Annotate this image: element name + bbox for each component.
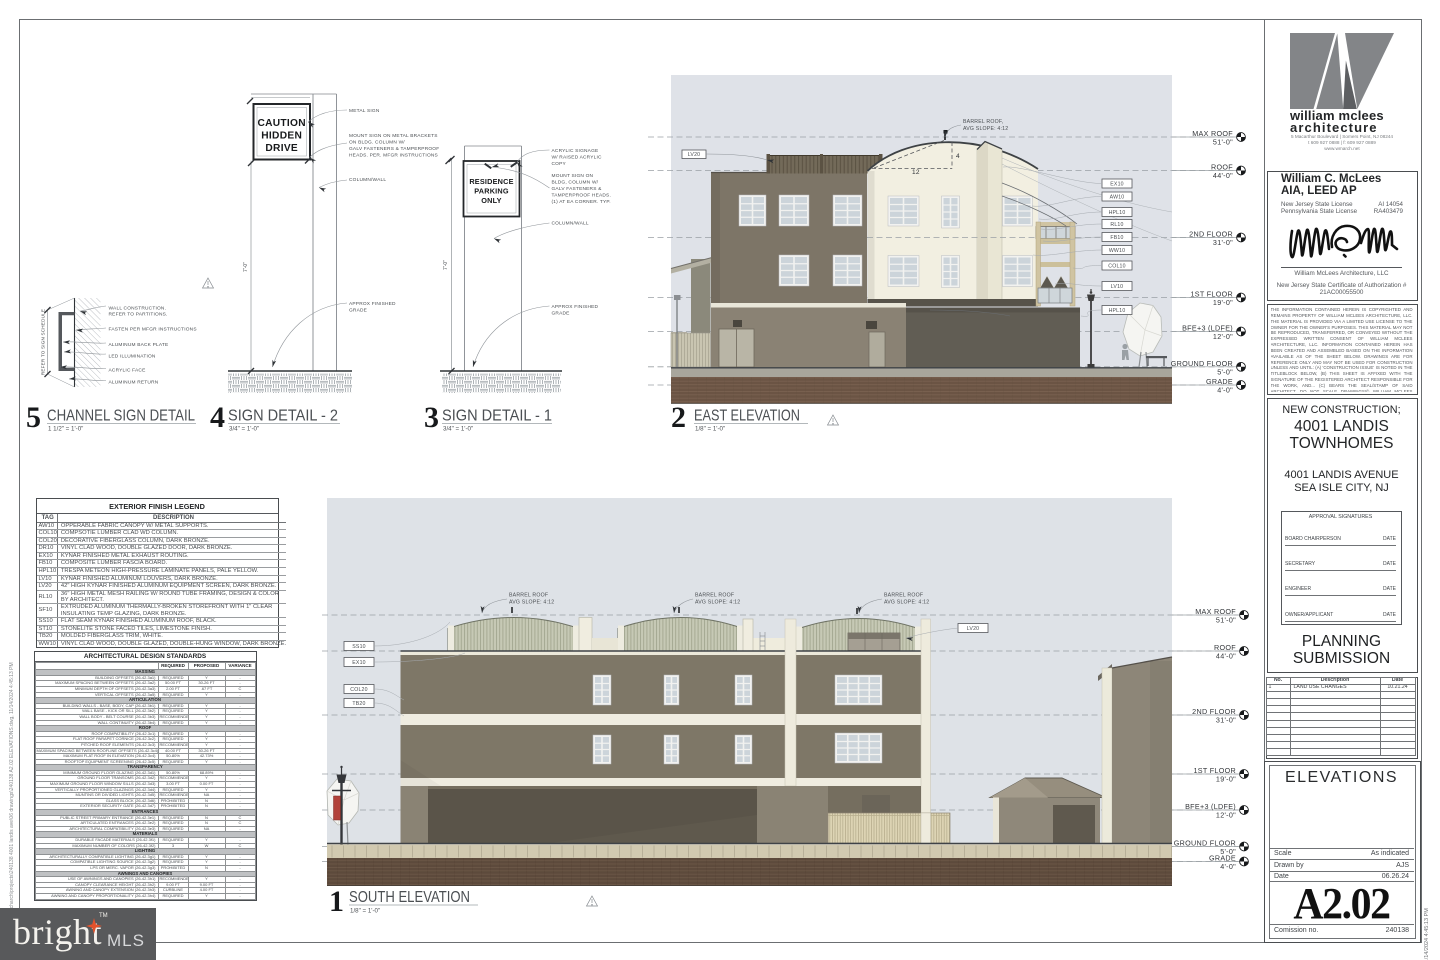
svg-text:GRADE: GRADE [349, 308, 367, 314]
svg-text:HPL10: HPL10 [1109, 210, 1126, 216]
svg-text:BARREL ROOF,: BARREL ROOF, [963, 119, 1003, 125]
svg-text:44'-0": 44'-0" [1216, 652, 1236, 661]
svg-text:TB20: TB20 [352, 701, 365, 707]
svg-text:5'-0": 5'-0" [1217, 367, 1233, 376]
svg-text:1/8" = 1'-0": 1/8" = 1'-0" [350, 908, 380, 915]
svg-text:7'-0": 7'-0" [443, 260, 449, 270]
svg-text:31'-0": 31'-0" [1216, 716, 1236, 725]
svg-text:7'-0": 7'-0" [243, 262, 249, 272]
svg-text:FASTEN PER MFGR INSTRUCTIONS: FASTEN PER MFGR INSTRUCTIONS [109, 327, 197, 333]
svg-text:44'-0": 44'-0" [1213, 171, 1233, 180]
svg-text:COPY: COPY [552, 161, 567, 167]
svg-text:1: 1 [329, 885, 344, 918]
svg-text:LV10: LV10 [1111, 284, 1124, 290]
svg-text:LV20: LV20 [967, 626, 980, 632]
svg-text:AW10: AW10 [1110, 194, 1125, 200]
svg-text:1/8" = 1'-0": 1/8" = 1'-0" [695, 426, 725, 433]
svg-text:COLUMN/WALL: COLUMN/WALL [349, 177, 386, 183]
svg-text:WW10: WW10 [1109, 248, 1125, 254]
svg-text:CAUTION: CAUTION [257, 118, 306, 129]
svg-text:COL10: COL10 [1108, 263, 1125, 269]
svg-text:5: 5 [26, 401, 41, 434]
svg-text:AVG SLOPE: 4:12: AVG SLOPE: 4:12 [509, 600, 554, 606]
svg-text:ON BLDG. COLUMN W/: ON BLDG. COLUMN W/ [349, 140, 405, 146]
svg-text:12'-0": 12'-0" [1216, 811, 1236, 820]
svg-text:GALV FASTENERS & TAMPERPROOF: GALV FASTENERS & TAMPERPROOF [349, 146, 439, 152]
svg-text:FB10: FB10 [1110, 235, 1123, 241]
svg-text:ALUMINUM RETURN: ALUMINUM RETURN [109, 380, 159, 386]
svg-text:BLDG, COLUMN W/: BLDG, COLUMN W/ [552, 180, 599, 186]
svg-text:HIDDEN: HIDDEN [261, 131, 302, 142]
svg-text:APPROX FINISHED: APPROX FINISHED [349, 301, 396, 307]
svg-text:SS10: SS10 [352, 644, 366, 650]
svg-text:ACRYLIC SIGNAGE: ACRYLIC SIGNAGE [552, 148, 599, 154]
svg-text:REFER TO PARTITIONS.: REFER TO PARTITIONS. [109, 312, 168, 318]
svg-text:METAL SIGN: METAL SIGN [349, 108, 380, 114]
svg-text:51'-0": 51'-0" [1213, 138, 1233, 147]
svg-text:EX10: EX10 [352, 660, 366, 666]
svg-text:HPL10: HPL10 [1109, 308, 1126, 314]
svg-text:COLUMN/WALL: COLUMN/WALL [552, 221, 589, 227]
svg-text:SIGN DETAIL - 1: SIGN DETAIL - 1 [442, 408, 552, 425]
svg-text:12: 12 [912, 169, 920, 176]
svg-text:SOUTH ELEVATION: SOUTH ELEVATION [349, 889, 470, 906]
svg-text:RL10: RL10 [1110, 222, 1123, 228]
svg-text:31'-0": 31'-0" [1213, 238, 1233, 247]
svg-text:AVG SLOPE: 4:12: AVG SLOPE: 4:12 [884, 600, 929, 606]
svg-text:MOUNT SIGN ON METAL BRACKETS: MOUNT SIGN ON METAL BRACKETS [349, 133, 438, 139]
svg-text:ONLY: ONLY [481, 196, 501, 205]
svg-text:ALUMINUM BACK PLATE: ALUMINUM BACK PLATE [109, 342, 169, 348]
svg-text:3: 3 [424, 401, 439, 434]
svg-text:4'-0": 4'-0" [1220, 862, 1236, 871]
svg-text:BARREL ROOF: BARREL ROOF [509, 593, 548, 599]
svg-text:AVG SLOPE: 4:12: AVG SLOPE: 4:12 [963, 126, 1008, 132]
svg-text:1 1/2" = 1'-0": 1 1/2" = 1'-0" [48, 426, 83, 433]
svg-text:TAMPERPROOF HEADS.: TAMPERPROOF HEADS. [552, 193, 611, 199]
svg-text:HEADS. PER. MFGR INSTRUCTIONS: HEADS. PER. MFGR INSTRUCTIONS [349, 153, 438, 159]
svg-text:EX10: EX10 [1110, 181, 1124, 187]
svg-text:(1) AT EA CORNER. TYP.: (1) AT EA CORNER. TYP. [552, 199, 611, 205]
svg-text:4: 4 [210, 401, 225, 434]
svg-text:SIGN DETAIL - 2: SIGN DETAIL - 2 [228, 408, 338, 425]
svg-text:RESIDENCE: RESIDENCE [469, 177, 513, 186]
svg-text:LV20: LV20 [688, 152, 701, 158]
svg-text:GRADE: GRADE [552, 311, 570, 317]
svg-text:EAST ELEVATION: EAST ELEVATION [694, 408, 800, 425]
svg-text:BARREL ROOF: BARREL ROOF [695, 593, 734, 599]
svg-text:AVG SLOPE: 4:12: AVG SLOPE: 4:12 [695, 600, 740, 606]
svg-text:4'-0": 4'-0" [1217, 386, 1233, 395]
svg-text:19'-0": 19'-0" [1213, 298, 1233, 307]
svg-text:WALL CONSTRUCTION.: WALL CONSTRUCTION. [109, 306, 167, 312]
svg-text:12'-0": 12'-0" [1213, 332, 1233, 341]
svg-text:DRIVE: DRIVE [265, 143, 298, 154]
svg-text:W/ RAISED ACRYLIC: W/ RAISED ACRYLIC [552, 155, 603, 161]
svg-text:LED ILLUMINATION: LED ILLUMINATION [109, 354, 156, 360]
svg-text:3/4" = 1'-0": 3/4" = 1'-0" [229, 426, 259, 433]
svg-text:CHANNEL SIGN DETAIL: CHANNEL SIGN DETAIL [47, 408, 195, 425]
svg-text:51'-0": 51'-0" [1216, 616, 1236, 625]
svg-text:REFER TO SIGN SCHEDULE: REFER TO SIGN SCHEDULE [41, 309, 46, 375]
svg-text:COL20: COL20 [350, 687, 367, 693]
svg-text:BARREL ROOF: BARREL ROOF [884, 593, 923, 599]
svg-text:APPROX FINISHED: APPROX FINISHED [552, 304, 599, 310]
svg-text:3/4" = 1'-0": 3/4" = 1'-0" [443, 426, 473, 433]
svg-text:PARKING: PARKING [474, 187, 509, 196]
svg-text:19'-0": 19'-0" [1216, 775, 1236, 784]
svg-text:ACRYLIC FACE: ACRYLIC FACE [109, 368, 146, 374]
svg-text:4: 4 [956, 153, 960, 160]
svg-text:MOUNT SIGN ON: MOUNT SIGN ON [552, 173, 594, 179]
svg-text:GALV FASTENERS &: GALV FASTENERS & [552, 186, 603, 192]
svg-text:2: 2 [671, 401, 686, 434]
